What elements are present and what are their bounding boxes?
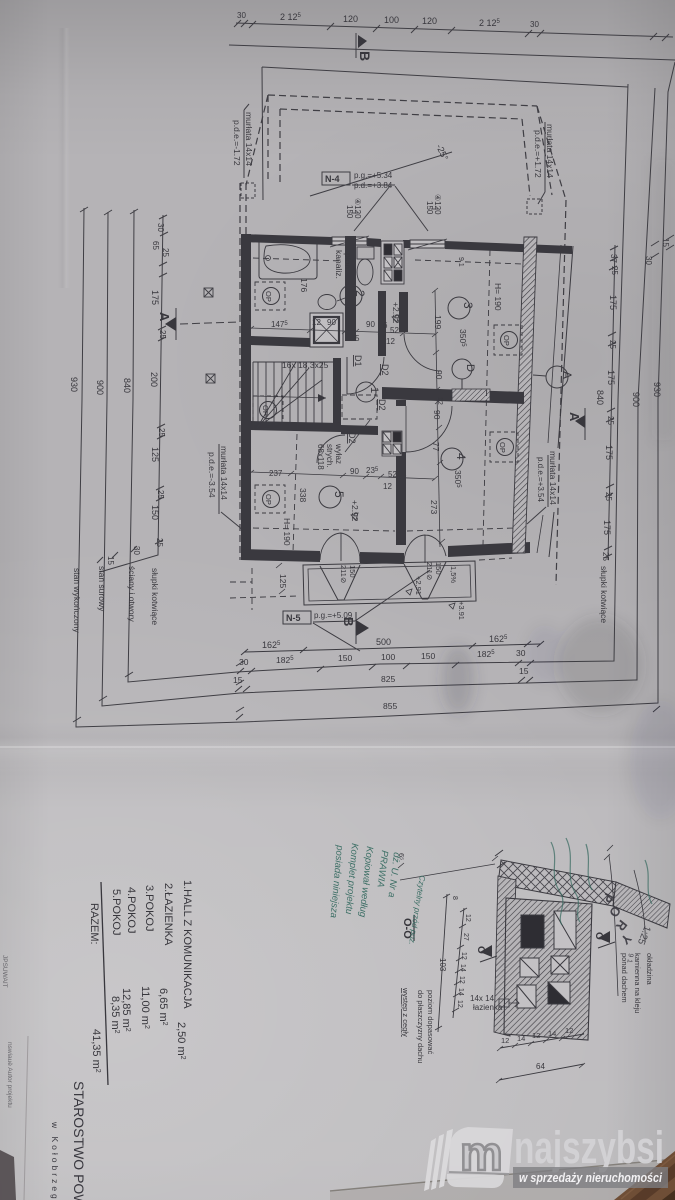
svg-text:N-4: N-4: [325, 174, 340, 184]
svg-text:90: 90: [350, 467, 359, 476]
svg-text:nswiauè Autor projektu: nswiauè Autor projektu: [6, 1042, 13, 1108]
svg-text:338: 338: [298, 488, 308, 502]
svg-text:3.POKOJ: 3.POKOJ: [143, 885, 155, 931]
svg-text:2.ŁAZIENKA: 2.ŁAZIENKA: [162, 883, 174, 946]
svg-text:D: D: [464, 364, 476, 372]
svg-text:840: 840: [595, 390, 605, 405]
svg-text:27: 27: [462, 933, 469, 941]
svg-text:OP: OP: [264, 291, 273, 302]
svg-text:175: 175: [606, 370, 616, 385]
svg-text:150: 150: [338, 653, 352, 663]
svg-text:1: 1: [368, 387, 380, 393]
svg-text:12: 12: [456, 1000, 463, 1008]
svg-text:103: 103: [438, 958, 447, 972]
svg-text:w Kołobrzegu: w Kołobrzegu: [50, 1121, 60, 1200]
svg-text:825: 825: [381, 674, 395, 684]
svg-text:OP: OP: [264, 494, 273, 505]
svg-text:1:25: 1:25: [635, 924, 653, 947]
svg-text:6: 6: [383, 321, 388, 330]
svg-text:słupki kotwiące: słupki kotwiące: [599, 566, 609, 623]
svg-text:posiada niniejsza: posiada niniejsza: [328, 844, 345, 919]
svg-text:D1: D1: [353, 355, 363, 367]
svg-text:12: 12: [460, 952, 467, 960]
svg-text:p.d.e.=-3.54: p.d.e.=-3.54: [207, 452, 217, 498]
svg-text:B: B: [357, 51, 373, 61]
svg-text:3: 3: [461, 302, 475, 309]
svg-text:500: 500: [376, 637, 391, 647]
svg-text:12: 12: [532, 1031, 540, 1040]
svg-text:150: 150: [421, 651, 435, 661]
svg-text:4: 4: [454, 453, 468, 460]
svg-text:H= 190: H= 190: [282, 518, 292, 546]
svg-text:D2: D2: [380, 364, 390, 376]
svg-text:Komplet projektu: Komplet projektu: [343, 843, 360, 916]
svg-text:kamienna na kleju: kamienna na kleju: [633, 953, 642, 1013]
svg-text:12: 12: [464, 914, 471, 922]
svg-text:RAZEM:: RAZEM:: [88, 903, 100, 945]
svg-text:64: 64: [536, 1062, 545, 1071]
svg-text:3505: 3505: [458, 329, 468, 347]
svg-text:H= 190: H= 190: [493, 283, 503, 311]
svg-text:STAROSTWO POWIA: STAROSTWO POWIA: [71, 1081, 87, 1200]
svg-text:12: 12: [501, 1036, 509, 1045]
svg-text:12: 12: [383, 482, 392, 491]
svg-text:235: 235: [366, 466, 379, 475]
svg-text:15: 15: [106, 556, 115, 565]
svg-text:p.d.e.=+3.54: p.d.e.=+3.54: [536, 457, 545, 502]
svg-text:125: 125: [278, 574, 288, 588]
svg-text:Y: Y: [618, 931, 635, 948]
svg-text:25: 25: [606, 416, 615, 425]
svg-text:B: B: [341, 617, 356, 626]
svg-text:200: 200: [149, 372, 159, 387]
svg-text:175: 175: [608, 295, 618, 310]
svg-text:5.POKOJ: 5.POKOJ: [110, 889, 122, 935]
svg-text:855: 855: [383, 701, 397, 711]
svg-text:12: 12: [312, 318, 321, 327]
svg-text:OP: OP: [502, 335, 511, 346]
svg-text:65: 65: [151, 241, 160, 250]
svg-text:N-5: N-5: [286, 613, 301, 623]
svg-text:murłata 14x14: murłata 14x14: [548, 451, 558, 505]
svg-text:25: 25: [601, 552, 610, 561]
svg-text:30: 30: [132, 546, 141, 555]
svg-text:łazienka: łazienka: [473, 1003, 503, 1012]
svg-text:150: 150: [150, 505, 160, 520]
svg-text:14: 14: [457, 988, 464, 996]
svg-text:120: 120: [422, 16, 437, 26]
svg-text:150: 150: [425, 201, 434, 215]
svg-text:do płaszczyzny dachu: do płaszczyzny dachu: [416, 990, 425, 1063]
svg-text:175: 175: [602, 520, 612, 535]
svg-text:11,00 m2: 11,00 m2: [139, 986, 151, 1029]
svg-text:kanaliz.: kanaliz.: [334, 250, 344, 279]
svg-text:14: 14: [548, 1029, 556, 1038]
svg-text:+3.91: +3.91: [457, 601, 466, 620]
svg-text:25: 25: [608, 340, 617, 349]
svg-text:77: 77: [431, 442, 441, 452]
svg-text:840: 840: [122, 378, 132, 393]
svg-text:1625: 1625: [489, 634, 508, 644]
svg-text:p.d.e.=+1.72: p.d.e.=+1.72: [533, 130, 543, 178]
svg-text:OP: OP: [498, 442, 507, 453]
svg-text:90: 90: [434, 370, 444, 380]
svg-text:41,35 m2: 41,35 m2: [90, 1029, 102, 1073]
svg-text:25: 25: [156, 490, 165, 499]
svg-text:1825: 1825: [276, 655, 294, 665]
svg-text:9 1: 9 1: [457, 257, 464, 267]
svg-text:37: 37: [609, 254, 618, 263]
svg-text:25: 25: [161, 248, 170, 257]
svg-text:30: 30: [237, 11, 246, 20]
svg-text:6,65 m2: 6,65 m2: [157, 988, 169, 1026]
svg-text:90: 90: [327, 318, 336, 327]
svg-text:stan wykończony: stan wykończony: [72, 568, 82, 633]
svg-text:900: 900: [95, 380, 105, 395]
svg-text:15: 15: [233, 675, 243, 685]
svg-text:wyłaz: wyłaz: [334, 443, 343, 464]
svg-text:4.POKOJ: 4.POKOJ: [125, 887, 137, 933]
svg-text:176: 176: [299, 278, 309, 292]
svg-text:poziom dopasować: poziom dopasować: [426, 990, 435, 1054]
svg-text:16x 18,3x25: 16x 18,3x25: [282, 360, 329, 370]
svg-text:30: 30: [156, 223, 165, 232]
svg-text:1475: 1475: [271, 320, 288, 329]
svg-text:JPSUWAIT: JPSUWAIT: [1, 955, 8, 988]
svg-text:A: A: [567, 412, 582, 422]
svg-text:O: O: [475, 946, 486, 954]
svg-text:25: 25: [610, 266, 619, 275]
svg-text:930: 930: [69, 377, 79, 392]
svg-text:199: 199: [433, 315, 443, 329]
svg-text:ściany i otwory: ściany i otwory: [127, 566, 137, 622]
svg-text:1825: 1825: [477, 649, 495, 659]
svg-text:900: 900: [631, 392, 641, 407]
svg-text:150: 150: [434, 562, 443, 575]
svg-text:25: 25: [157, 428, 166, 437]
svg-text:5: 5: [332, 491, 346, 498]
svg-text:p.d.e.=-1.72: p.d.e.=-1.72: [232, 120, 242, 166]
svg-text:1.HALL Z KOMUNIKACJA: 1.HALL Z KOMUNIKACJA: [181, 880, 193, 1009]
svg-text:14x 14: 14x 14: [470, 994, 495, 1003]
svg-text:30: 30: [516, 648, 526, 658]
svg-text:3505: 3505: [453, 470, 463, 488]
svg-text:Czytelny przód poz.: Czytelny przód poz.: [407, 875, 427, 946]
svg-text:stan surowy: stan surowy: [97, 566, 107, 612]
svg-text:237: 237: [269, 469, 283, 478]
svg-text:150: 150: [348, 565, 357, 578]
svg-text:D2: D2: [347, 432, 357, 444]
svg-text:273: 273: [429, 500, 439, 514]
svg-text:175: 175: [604, 445, 614, 460]
svg-text:14: 14: [459, 964, 466, 972]
svg-text:O: O: [593, 932, 604, 940]
svg-text:25: 25: [158, 330, 167, 339]
svg-text:słupki kotwiące: słupki kotwiące: [150, 568, 160, 625]
svg-text:25: 25: [155, 538, 164, 547]
svg-text:+2.91: +2.91: [414, 576, 423, 595]
svg-text:1625: 1625: [262, 640, 281, 650]
svg-text:8: 8: [451, 896, 458, 900]
svg-text:-25°: -25°: [434, 143, 450, 163]
svg-text:30: 30: [530, 20, 539, 29]
svg-text:125: 125: [150, 447, 160, 462]
svg-text:12: 12: [565, 1026, 573, 1035]
svg-text:murłata 14x14: murłata 14x14: [219, 446, 229, 500]
svg-text:murłata 14x14: murłata 14x14: [244, 112, 254, 166]
svg-text:A: A: [560, 371, 574, 379]
svg-text:w sprzedaży nieruchomości: w sprzedaży nieruchomości: [519, 1171, 662, 1185]
svg-text:30: 30: [239, 657, 249, 667]
svg-text:D2: D2: [377, 399, 387, 411]
svg-text:występ z cegły: występ z cegły: [401, 987, 410, 1037]
svg-text:30: 30: [644, 256, 653, 265]
svg-text:52: 52: [388, 470, 397, 479]
svg-text:1,5%: 1,5%: [449, 566, 458, 583]
svg-text:5: 5: [355, 334, 360, 343]
svg-text:8,35 m2: 8,35 m2: [109, 996, 121, 1034]
svg-text:12: 12: [386, 337, 395, 346]
svg-text:25: 25: [604, 492, 613, 501]
svg-text:2,50 m2: 2,50 m2: [175, 1022, 187, 1060]
svg-text:120: 120: [343, 14, 358, 24]
svg-text:150: 150: [345, 205, 354, 219]
svg-text:52: 52: [390, 326, 399, 335]
svg-text:211⊘: 211⊘: [425, 562, 434, 580]
svg-text:211⊘: 211⊘: [339, 565, 348, 583]
svg-text:12: 12: [458, 976, 465, 984]
svg-text:strych.: strych.: [325, 444, 334, 468]
svg-text:murłata 14x14: murłata 14x14: [545, 124, 555, 178]
svg-text:2 125: 2 125: [280, 12, 302, 22]
svg-text:A: A: [157, 312, 172, 322]
svg-text:100: 100: [384, 15, 399, 25]
svg-text:100: 100: [381, 652, 395, 662]
svg-text:2: 2: [353, 290, 367, 297]
svg-text:okładzina: okładzina: [645, 953, 654, 986]
svg-text:najszybsi: najszybsi: [514, 1122, 664, 1173]
svg-text:175: 175: [150, 290, 160, 305]
svg-text:14: 14: [517, 1034, 525, 1043]
svg-text:2 125: 2 125: [479, 18, 501, 28]
svg-text:90: 90: [366, 320, 375, 329]
